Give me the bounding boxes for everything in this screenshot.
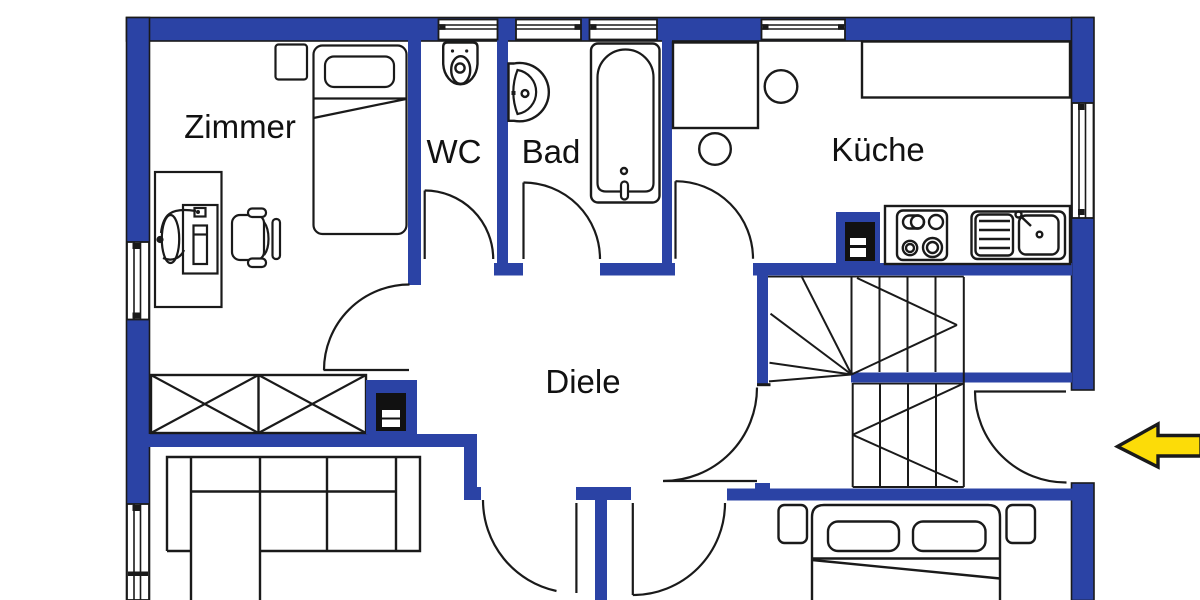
- svg-text:Bad: Bad: [522, 133, 581, 170]
- svg-text:Zimmer: Zimmer: [184, 108, 296, 145]
- svg-text:Küche: Küche: [831, 131, 925, 168]
- svg-text:Diele: Diele: [545, 363, 620, 400]
- svg-text:WC: WC: [427, 133, 482, 170]
